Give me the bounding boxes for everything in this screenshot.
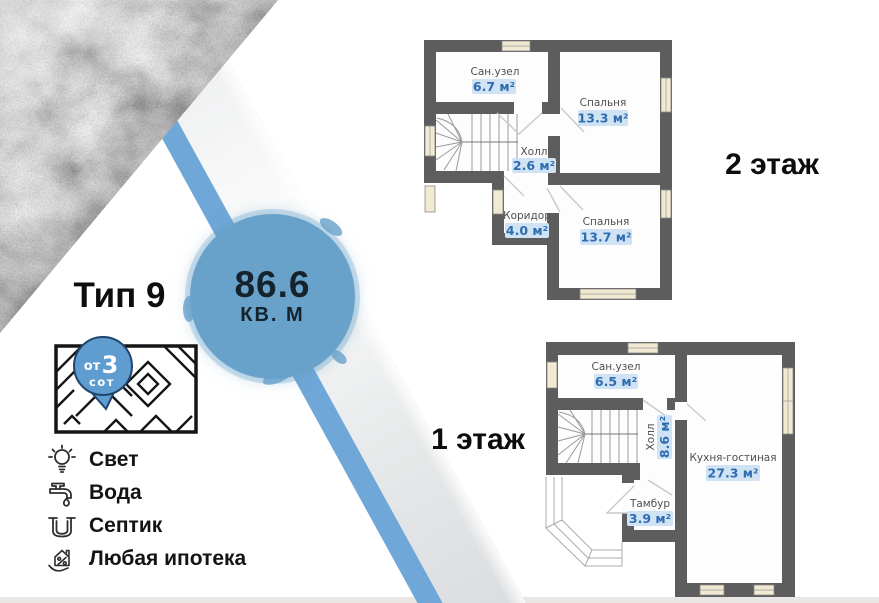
room-area: 2.6 м² bbox=[513, 158, 555, 173]
feature-light: Свет bbox=[46, 443, 246, 476]
flyer-canvas: 86.6 кв. м Тип 9 от 3 сот bbox=[0, 0, 879, 603]
total-area-unit: кв. м bbox=[240, 304, 304, 327]
room-name: Коридор bbox=[503, 210, 551, 222]
feature-mortgage: Любая ипотека bbox=[46, 542, 246, 575]
feature-label: Септик bbox=[89, 514, 162, 538]
room-name: Спальня bbox=[583, 216, 630, 228]
room-name: Сан.узел bbox=[471, 66, 520, 78]
lightbulb-icon bbox=[46, 444, 78, 476]
total-area-badge: 86.6 кв. м bbox=[190, 214, 355, 379]
room-area: 4.0 м² bbox=[506, 223, 548, 238]
room-name: Холл bbox=[520, 146, 547, 158]
feature-label: Вода bbox=[89, 481, 142, 505]
room-name: Холл bbox=[645, 423, 657, 450]
feature-label: Свет bbox=[89, 448, 139, 472]
room-name: Тамбур bbox=[629, 498, 670, 510]
room-area: 13.7 м² bbox=[581, 230, 632, 245]
features-list: Свет Вода Септик bbox=[46, 443, 246, 575]
floor-1-plan: Сан.узел 6.5 м² Холл 8.6 м² Кухня-гостин… bbox=[540, 334, 802, 603]
house-percent-icon bbox=[46, 543, 78, 575]
septic-tank-icon bbox=[46, 510, 78, 542]
pin-unit: сот bbox=[89, 375, 115, 389]
total-area-value: 86.6 bbox=[234, 266, 310, 305]
floor1-porch-steps bbox=[546, 477, 622, 566]
feature-water: Вода bbox=[46, 476, 246, 509]
room-area: 6.5 м² bbox=[595, 374, 637, 389]
room-area: 27.3 м² bbox=[708, 466, 759, 481]
floor-2-plan: Сан.узел 6.7 м² Спальня 13.3 м² Холл 2.6… bbox=[418, 32, 680, 308]
floor-1-label: 1 этаж bbox=[413, 423, 543, 457]
land-plot-map: от 3 сот bbox=[52, 332, 202, 436]
room-name: Сан.узел bbox=[592, 361, 641, 373]
feature-label: Любая ипотека bbox=[89, 547, 246, 571]
room-area: 13.3 м² bbox=[578, 111, 629, 126]
pin-prefix: от bbox=[84, 359, 101, 374]
floor-2-label: 2 этаж bbox=[707, 148, 837, 182]
room-area: 3.9 м² bbox=[629, 511, 671, 526]
room-area: 8.6 м² bbox=[657, 416, 672, 458]
room-name: Спальня bbox=[580, 97, 627, 109]
room-name: Кухня-гостиная bbox=[689, 452, 776, 464]
feature-septic: Септик bbox=[46, 509, 246, 542]
faucet-icon bbox=[46, 477, 78, 509]
room-area: 6.7 м² bbox=[473, 79, 515, 94]
house-type-title: Тип 9 bbox=[52, 276, 187, 316]
